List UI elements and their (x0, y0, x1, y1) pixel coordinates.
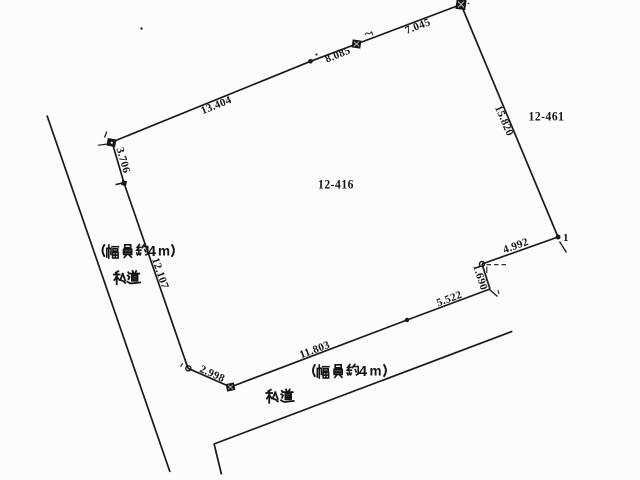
svg-text:m: m (158, 244, 170, 259)
svg-text:1: 1 (563, 232, 569, 244)
svg-text:12-416: 12-416 (318, 177, 354, 192)
svg-text:4: 4 (359, 363, 368, 380)
svg-text:m: m (370, 364, 382, 379)
svg-text:12-461: 12-461 (529, 109, 565, 124)
svg-text:4: 4 (148, 243, 157, 260)
